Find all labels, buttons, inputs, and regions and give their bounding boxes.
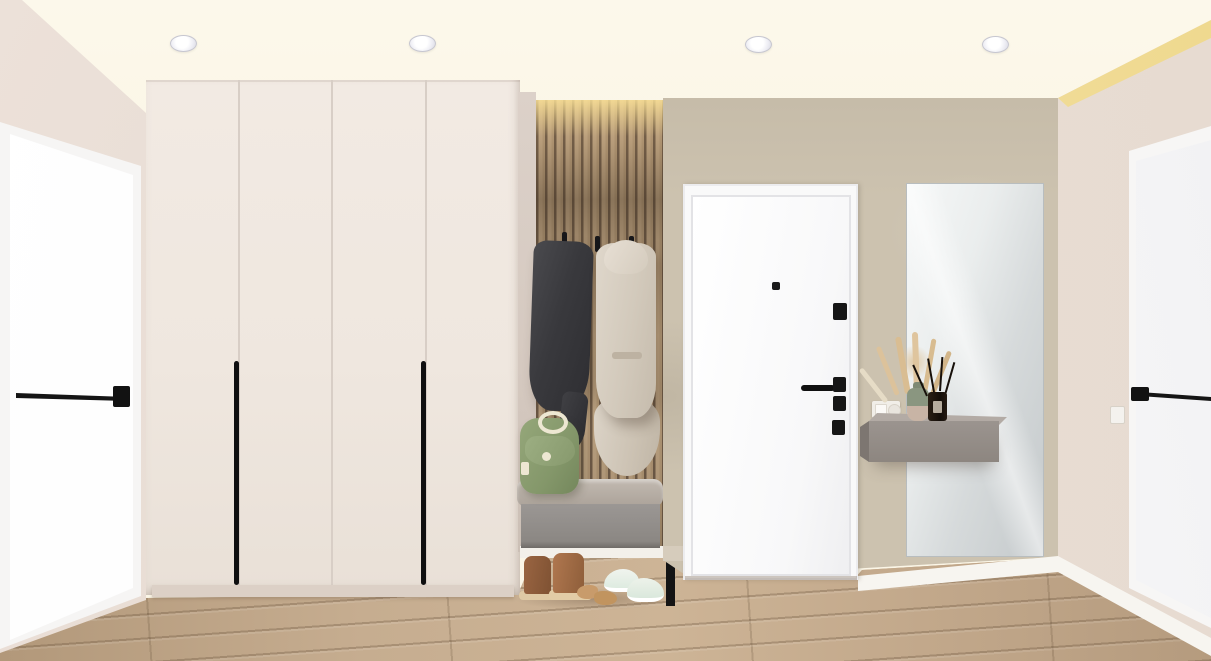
dark-coat bbox=[528, 240, 594, 412]
left-door-handle bbox=[113, 386, 130, 407]
backpack-drawcord bbox=[542, 452, 551, 461]
recessed-light-icon bbox=[409, 35, 436, 52]
recessed-light-icon bbox=[745, 36, 772, 53]
recessed-light-icon bbox=[170, 35, 197, 52]
peephole-icon bbox=[772, 282, 780, 290]
right-door-handle bbox=[1131, 387, 1149, 401]
recessed-light-icon bbox=[982, 36, 1009, 53]
door-lock-bottom bbox=[832, 420, 845, 435]
door-lock-middle bbox=[833, 396, 846, 411]
door-lock-top bbox=[833, 303, 847, 320]
entry-door-handle bbox=[801, 385, 835, 391]
backpack-handle bbox=[538, 411, 568, 434]
console-front bbox=[869, 421, 999, 462]
wardrobe-handle bbox=[421, 361, 426, 585]
handle-escutcheon bbox=[833, 377, 846, 392]
wardrobe-plinth bbox=[152, 585, 514, 597]
beige-coat-belt bbox=[612, 352, 642, 359]
hallway-interior-render bbox=[0, 0, 1211, 661]
bench-box bbox=[521, 504, 660, 548]
door-threshold-shadow bbox=[685, 576, 857, 580]
backpack-tag bbox=[521, 462, 529, 475]
diffuser-label bbox=[933, 401, 942, 413]
tan-slipper bbox=[594, 591, 617, 605]
wardrobe-handle bbox=[234, 361, 239, 585]
backpack-flap bbox=[525, 436, 575, 466]
wardrobe bbox=[146, 80, 520, 595]
wardrobe-door-seam bbox=[331, 80, 333, 594]
brown-boot bbox=[524, 556, 551, 594]
beige-coat-collar bbox=[604, 240, 648, 274]
light-switch bbox=[1110, 406, 1125, 424]
